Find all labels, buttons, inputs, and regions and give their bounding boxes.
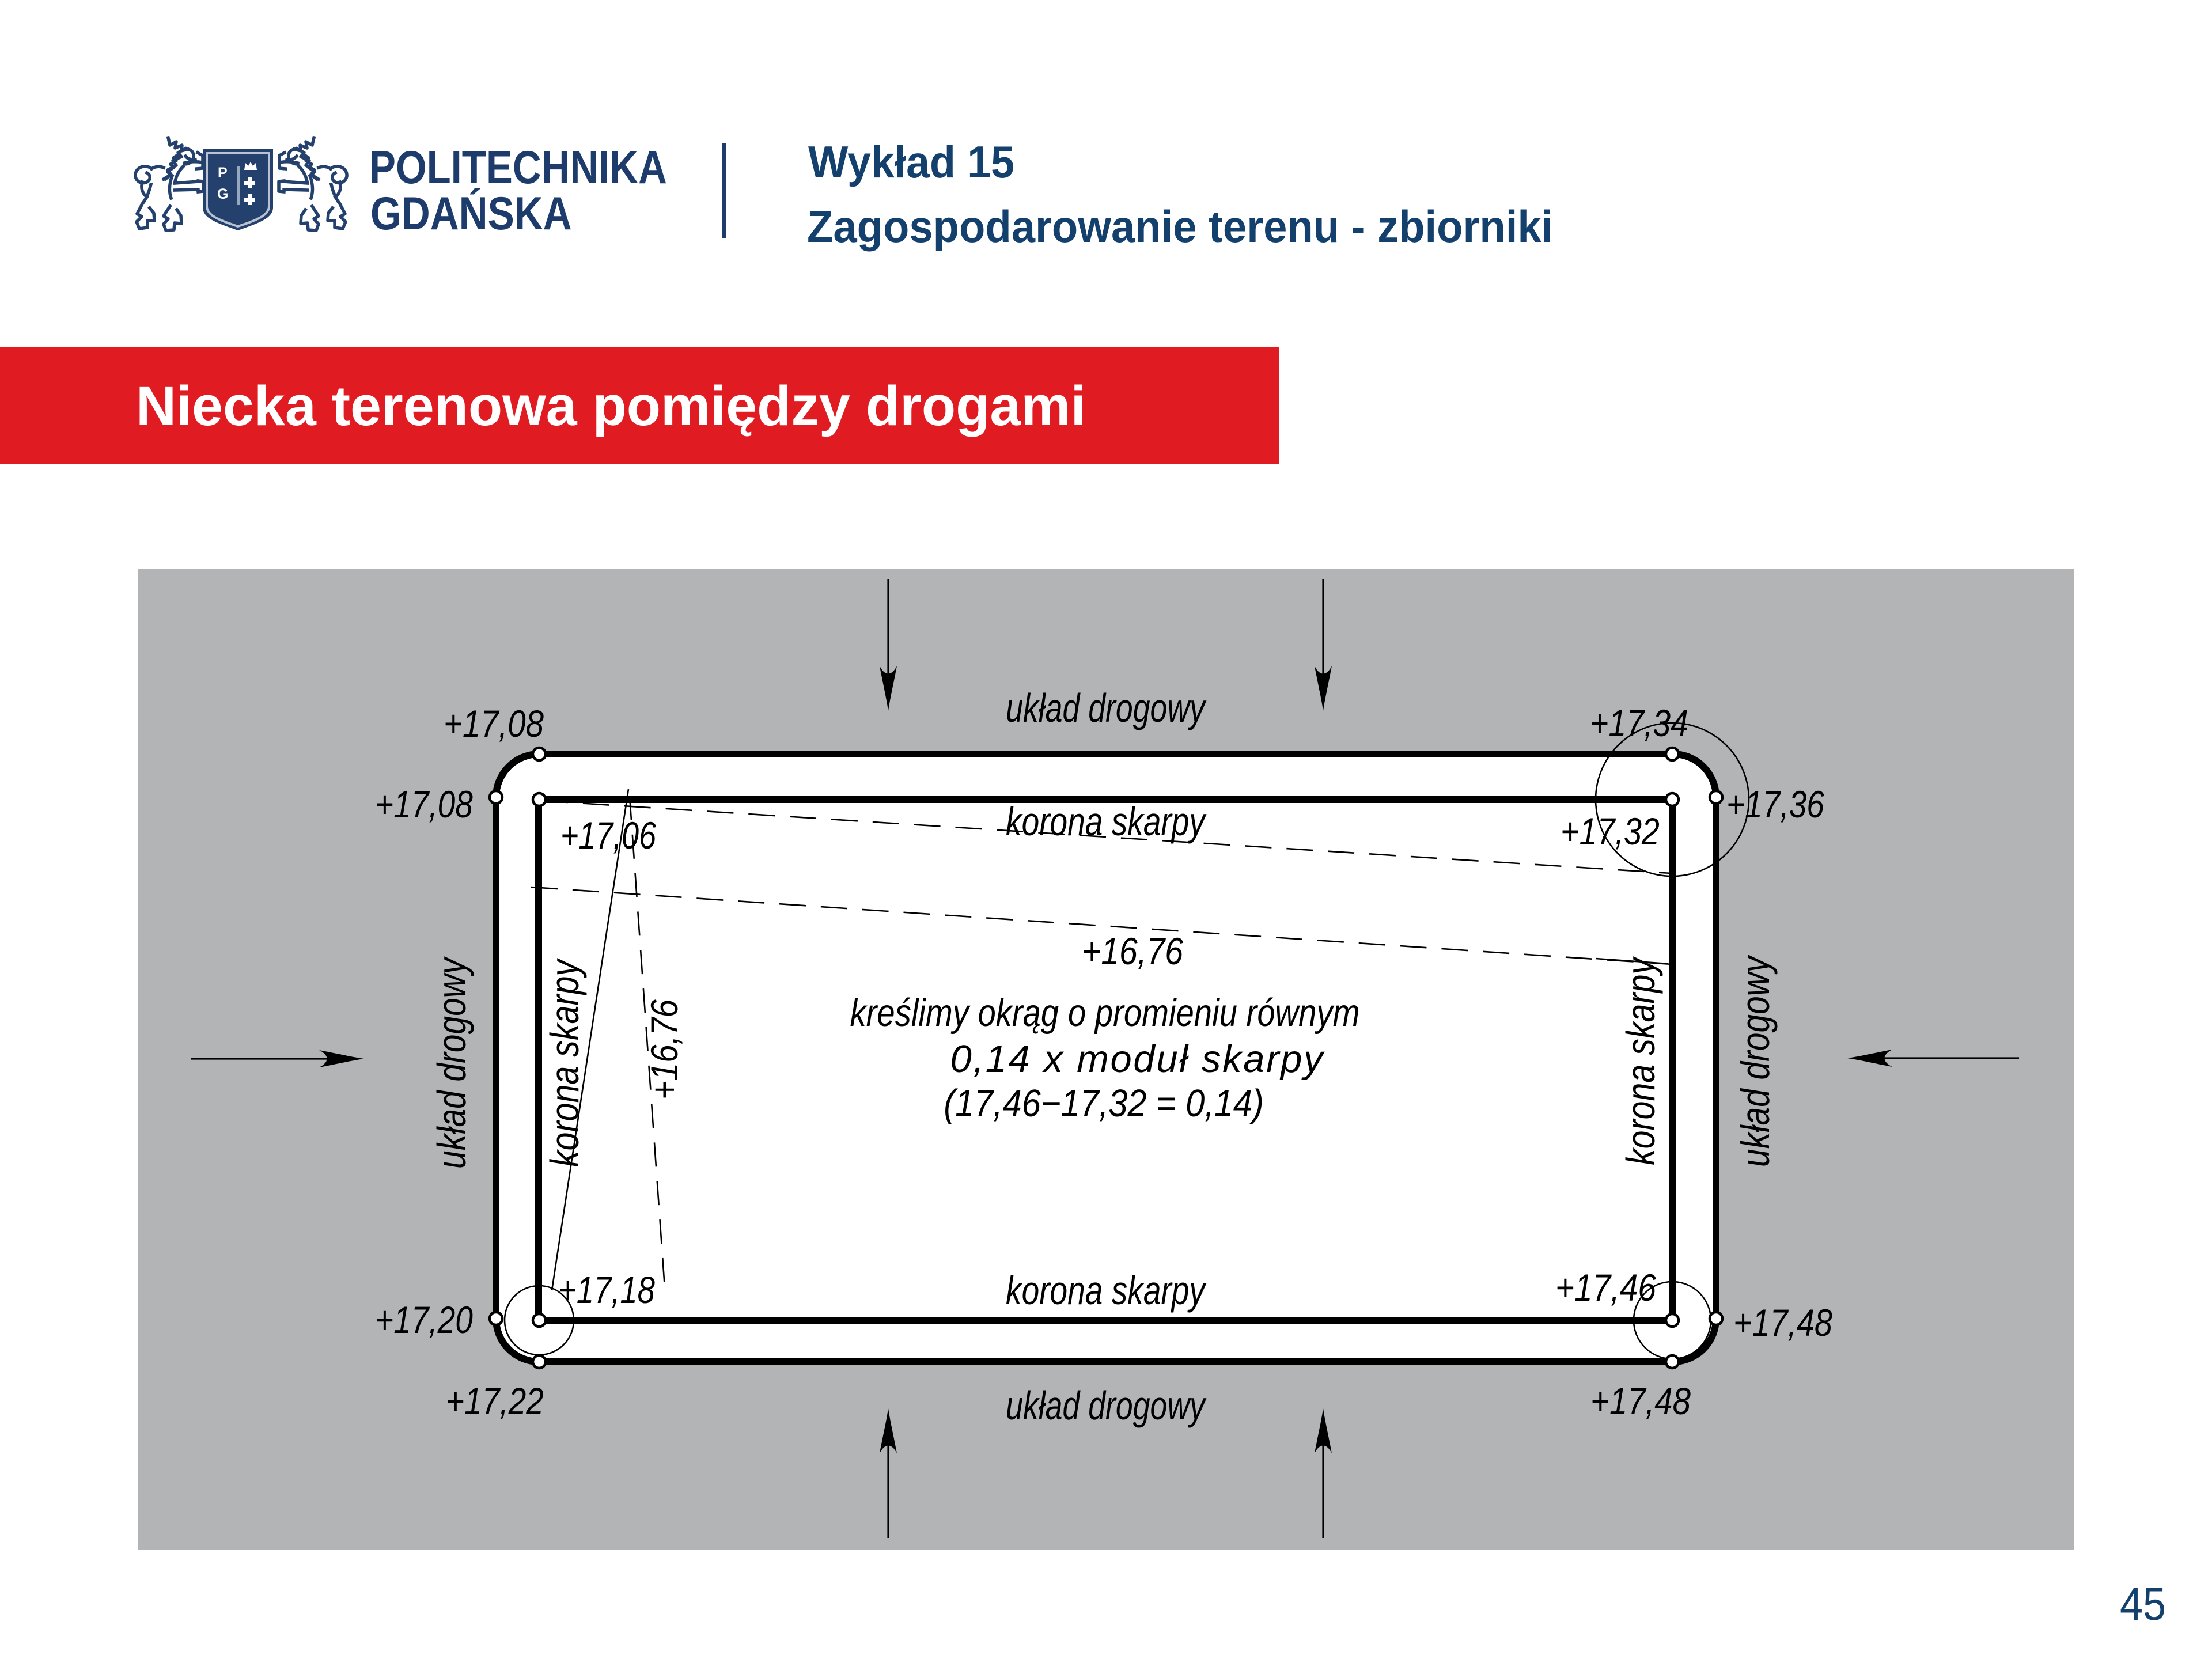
svg-text:+17,08: +17,08 (375, 783, 473, 825)
svg-text:+17,48: +17,48 (1733, 1302, 1832, 1344)
svg-text:+17,36: +17,36 (1726, 783, 1824, 825)
svg-text:45: 45 (2120, 1578, 2166, 1630)
svg-text:(17,46−17,32 = 0,14): (17,46−17,32 = 0,14) (944, 1082, 1264, 1125)
svg-text:korona skarpy: korona skarpy (1006, 800, 1207, 844)
svg-text:korona skarpy: korona skarpy (542, 957, 588, 1167)
svg-text:+16,76: +16,76 (1082, 930, 1184, 973)
svg-text:układ drogowy: układ drogowy (429, 956, 474, 1169)
svg-text:POLITECHNIKA: POLITECHNIKA (369, 141, 667, 193)
svg-text:+17,32: +17,32 (1560, 810, 1660, 853)
svg-text:Niecka terenowa pomiędzy droga: Niecka terenowa pomiędzy drogami (136, 374, 1086, 437)
svg-text:+17,08: +17,08 (444, 703, 544, 745)
svg-text:+17,18: +17,18 (558, 1268, 655, 1311)
svg-text:korona skarpy: korona skarpy (1006, 1268, 1207, 1313)
svg-text:układ drogowy: układ drogowy (1006, 686, 1207, 730)
svg-text:+17,34: +17,34 (1590, 702, 1688, 744)
svg-text:+17,48: +17,48 (1590, 1380, 1691, 1423)
svg-text:G: G (217, 186, 228, 202)
svg-text:+17,06: +17,06 (560, 815, 656, 857)
svg-text:układ drogowy: układ drogowy (1732, 954, 1778, 1167)
svg-text:układ drogowy: układ drogowy (1006, 1384, 1207, 1428)
svg-text:+17,20: +17,20 (375, 1298, 473, 1341)
svg-text:korona skarpy: korona skarpy (1618, 956, 1664, 1165)
svg-text:0,14 x moduł skarpy: 0,14 x moduł skarpy (950, 1037, 1325, 1081)
svg-text:GDAŃSKA: GDAŃSKA (370, 187, 572, 239)
svg-text:Wykład 15: Wykład 15 (808, 137, 1014, 187)
svg-text:+17,22: +17,22 (446, 1380, 544, 1422)
svg-text:kreślimy okrąg o promieniu: kreślimy okrąg o promieniu równym (850, 991, 1360, 1035)
svg-text:P: P (218, 165, 228, 181)
svg-text:+16,76: +16,76 (643, 999, 686, 1100)
svg-text:Zagospodarowanie terenu - zbio: Zagospodarowanie terenu - zbiorniki (807, 202, 1553, 252)
svg-text:+17,46: +17,46 (1555, 1267, 1657, 1309)
